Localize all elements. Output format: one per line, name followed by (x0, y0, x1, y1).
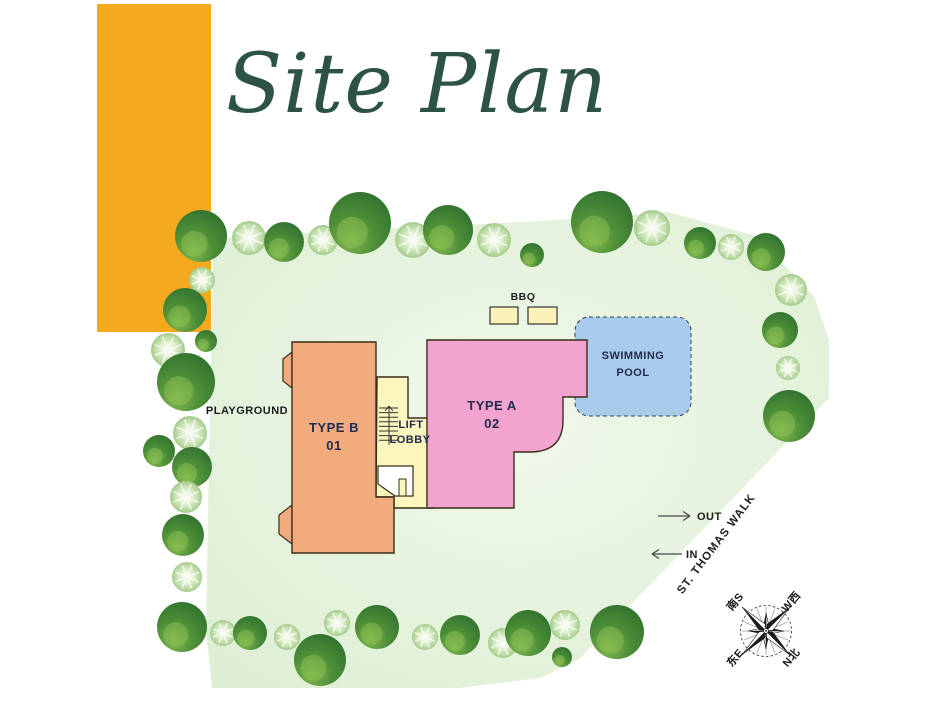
tree-light (776, 356, 800, 380)
tree-dark-highlight (770, 411, 796, 437)
tree-light (232, 221, 266, 255)
in-arrow-label: IN (686, 549, 698, 561)
type-b-label: TYPE B (309, 420, 359, 435)
tree-dark-highlight (511, 628, 534, 651)
tree-dark-highlight (555, 655, 565, 665)
compass-rose: 南SW西东EN北 (723, 589, 803, 670)
tree-light (477, 223, 511, 257)
tree-light (550, 610, 580, 640)
tree-dark-highlight (163, 622, 188, 647)
tree-dark-highlight (597, 627, 624, 654)
tree-dark-highlight (429, 225, 454, 250)
type-b-unit-label: 01 (326, 438, 341, 453)
tree-dark-highlight (767, 326, 785, 344)
compass-direction-label: W西 (779, 589, 803, 615)
bbq-pit (528, 307, 557, 324)
tree-light (324, 610, 350, 636)
tree-dark-highlight (237, 630, 254, 647)
tree-light (173, 416, 207, 450)
tree-light (634, 210, 670, 246)
bbq-label: BBQ (511, 291, 536, 303)
tree-light (170, 481, 202, 513)
tree-dark-highlight (167, 531, 188, 552)
tree-light (172, 562, 202, 592)
compass-direction-label: 东E (723, 646, 746, 670)
tree-dark-highlight (445, 631, 465, 651)
tree-dark-highlight (752, 248, 771, 267)
swimming-pool-label: POOL (616, 367, 649, 379)
lobby-entrance-step (399, 479, 406, 496)
tree-light (775, 274, 807, 306)
tree-dark-highlight (301, 655, 327, 681)
tree-dark-highlight (361, 623, 383, 645)
tree-dark-highlight (182, 231, 208, 257)
type-a-unit-label: 02 (484, 416, 499, 431)
swimming-pool-label: SWIMMING (602, 350, 665, 362)
tree-dark-highlight (269, 238, 289, 258)
lift-lobby-label: LOBBY (390, 434, 431, 446)
lift-lobby-label: LIFT (398, 419, 423, 431)
tree-dark-highlight (688, 240, 704, 256)
out-arrow-label: OUT (697, 511, 722, 523)
tree-dark-highlight (147, 448, 163, 464)
playground-label: PLAYGROUND (206, 405, 288, 417)
tree-dark-highlight (579, 216, 610, 247)
tree-dark-highlight (337, 217, 368, 248)
tree-dark-highlight (198, 339, 209, 350)
tree-dark-highlight (164, 376, 193, 405)
tree-light (412, 624, 438, 650)
site-plan-page: Site Plan TYPE B01TYPE A02LIFTLOBBYSWIMM… (0, 0, 943, 717)
tree-dark-highlight (169, 306, 191, 328)
tree-light (210, 620, 236, 646)
tree-light (274, 624, 300, 650)
type-b-balcony-tab (283, 352, 292, 388)
tree-light (189, 267, 215, 293)
type-a-label: TYPE A (467, 398, 517, 413)
tree-dark-highlight (177, 463, 197, 483)
tree-light (718, 234, 744, 260)
compass-direction-label: 南S (723, 590, 746, 614)
tree-dark-highlight (523, 253, 535, 265)
bbq-pit (490, 307, 518, 324)
site-plan-drawing: TYPE B01TYPE A02LIFTLOBBYSWIMMINGPOOLBBQ… (0, 0, 943, 717)
